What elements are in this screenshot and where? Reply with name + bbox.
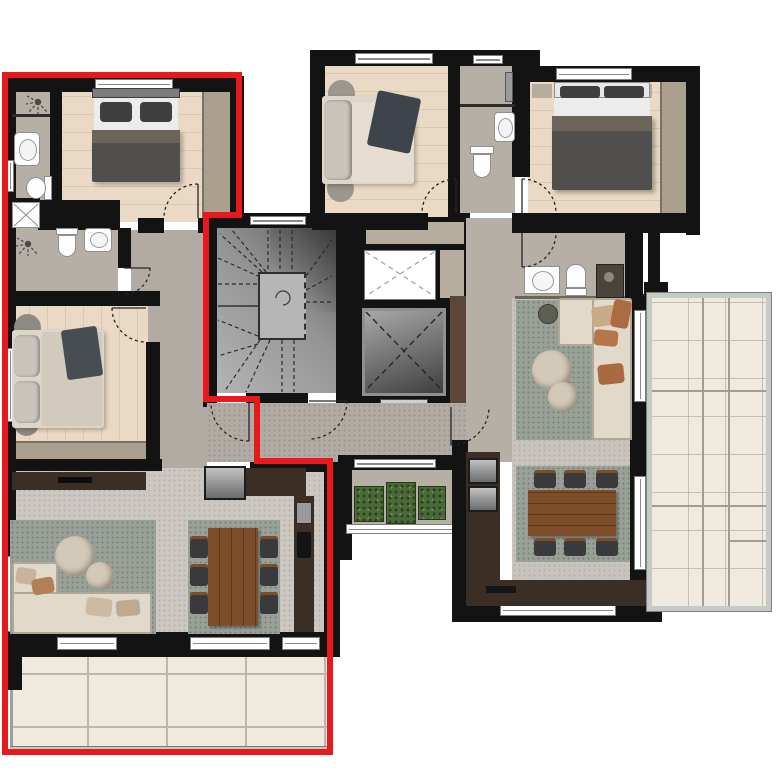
tv-unit [58, 477, 92, 483]
dining-chair [190, 564, 208, 586]
fridge-appliance [468, 458, 498, 484]
wall [138, 218, 164, 233]
bed-headboard [92, 88, 180, 98]
planter-box [418, 486, 446, 520]
shower-glass-line [460, 104, 515, 107]
pouf [548, 382, 578, 412]
dining-chair [596, 470, 618, 488]
wall [338, 455, 352, 535]
bed-blanket-fold [552, 116, 652, 131]
elevator-cab [362, 308, 446, 396]
wall [448, 66, 460, 213]
oven-appliance [204, 466, 246, 500]
balcony-railing-bottom [10, 746, 332, 751]
nightstand [532, 84, 552, 98]
wall [312, 213, 428, 230]
toilet-icon [56, 228, 78, 235]
bed-throw [61, 326, 104, 381]
shaft-panel [440, 250, 464, 298]
window [355, 53, 433, 64]
sink-basin [532, 271, 554, 291]
kitchen-counter [246, 468, 306, 496]
wall [4, 291, 160, 306]
terrace-tile-line [702, 298, 704, 606]
bed-pillow [14, 381, 40, 423]
bed-pillow [324, 100, 352, 180]
wall [338, 534, 352, 560]
planter-box [354, 486, 384, 522]
toilet-icon [565, 288, 587, 296]
dining-table [208, 528, 258, 626]
kitchen-sink [296, 502, 312, 524]
wall [512, 213, 700, 233]
pouf [86, 562, 114, 590]
sofa-pillow [115, 599, 140, 617]
bed-pillow [100, 102, 132, 122]
window [250, 216, 306, 225]
bed-pillow [14, 335, 40, 377]
kitchen-counter [466, 580, 648, 606]
dining-chair [190, 592, 208, 614]
wall [4, 459, 162, 471]
light-well [364, 250, 436, 300]
planter-box [386, 482, 416, 524]
dining-chair [564, 470, 586, 488]
counter-item [486, 586, 516, 593]
window [6, 160, 14, 192]
floor-plan [0, 0, 780, 780]
wall [203, 215, 217, 407]
window [282, 637, 320, 650]
sink-basin [19, 139, 37, 161]
terrace-tile-line [652, 505, 766, 507]
wall [686, 66, 700, 235]
corridor-floor [207, 403, 467, 462]
shower-tray [12, 202, 40, 228]
toilet-icon [470, 146, 494, 154]
dining-chair [260, 536, 278, 558]
shower-bar [505, 72, 513, 102]
bed-blanket-fold [92, 130, 180, 143]
sofa-pillow [85, 597, 113, 618]
dining-chair [260, 564, 278, 586]
dining-table [528, 490, 616, 536]
wall [118, 228, 131, 268]
unit-a-bedroom-2-closet [14, 441, 148, 461]
terrace-tile-line [728, 298, 730, 606]
unit-a-bedroom-1-closet [202, 92, 232, 218]
balcony-small-tile-row [10, 726, 332, 728]
side-table [538, 304, 558, 324]
terrace-tile-line [652, 390, 766, 392]
window [354, 459, 436, 468]
window [634, 310, 646, 402]
bed-pillow [140, 102, 172, 122]
toilet-bowl [566, 264, 586, 288]
window [473, 55, 503, 64]
wall [146, 342, 160, 462]
window [346, 524, 458, 534]
dining-chair [534, 538, 556, 556]
laundry-knob [604, 272, 614, 282]
balcony-railing-left [10, 686, 13, 750]
sink-basin [498, 118, 513, 138]
terrace-floor [652, 298, 766, 606]
toilet-bowl [26, 177, 46, 199]
toilet-bowl [473, 154, 491, 178]
terrace-tile-line [728, 540, 766, 542]
oven-appliance [468, 486, 498, 512]
bed-pillow [604, 86, 644, 98]
window [634, 476, 646, 570]
sink-basin [90, 232, 108, 248]
dining-chair [596, 538, 618, 556]
dining-chair [190, 536, 208, 558]
wall [230, 76, 244, 218]
window [190, 637, 270, 650]
window [556, 68, 632, 80]
staircase-core [258, 272, 306, 340]
dining-chair [260, 592, 278, 614]
wall [625, 213, 643, 303]
bed-pillow [560, 86, 600, 98]
dining-chair [564, 538, 586, 556]
sofa-pillow [597, 363, 625, 386]
unit-b-hall-floor [466, 218, 517, 462]
wall [38, 200, 120, 230]
toilet-bowl [58, 235, 76, 257]
dining-chair [534, 470, 556, 488]
window [57, 637, 117, 650]
shower-glass-line [12, 114, 50, 117]
cooktop [297, 532, 311, 558]
sofa-pillow [593, 329, 618, 347]
unit-a-balcony-floor [10, 652, 332, 750]
wall [648, 233, 660, 289]
unit-b-bedroom-4-closet [660, 82, 688, 216]
